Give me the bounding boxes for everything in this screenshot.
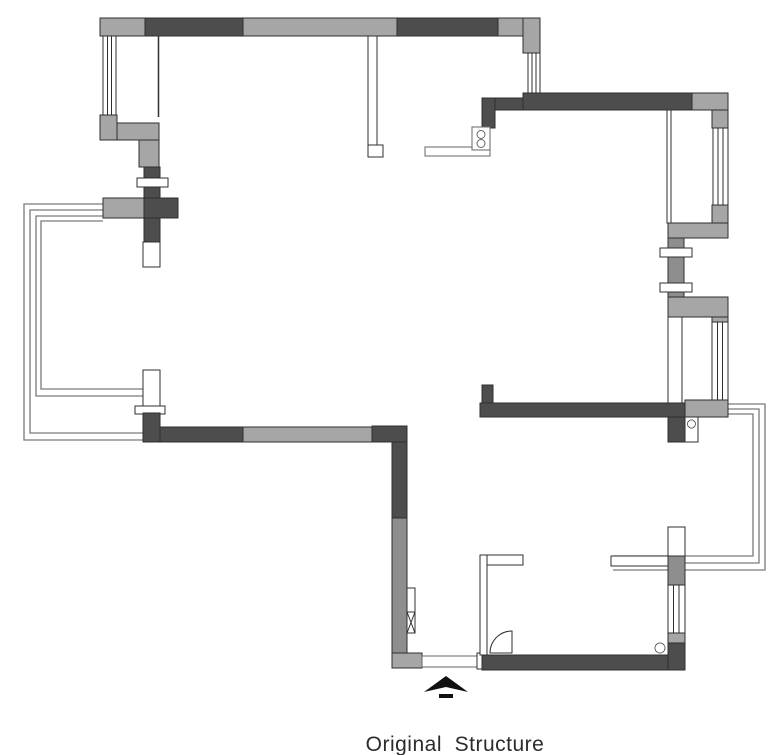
wall-segment (243, 18, 397, 36)
wall-segment (712, 205, 728, 223)
window (528, 53, 540, 93)
stud-wall (480, 555, 487, 655)
wall-segment (160, 427, 243, 442)
wall-segment (243, 427, 372, 442)
bathroom-partitions (480, 527, 685, 655)
wall-segment (712, 110, 728, 128)
drain-circle (655, 643, 665, 653)
stud-wall (611, 556, 668, 566)
stove-burner (477, 131, 485, 139)
wall-sleeve-tick (660, 283, 692, 292)
shaft-box (407, 588, 415, 633)
wall-segment (668, 556, 685, 585)
floor-plan-svg (0, 0, 775, 755)
stud-wall (668, 315, 682, 403)
wall-segment (668, 633, 685, 643)
wall-segment (100, 115, 117, 140)
wall-corner (372, 426, 407, 442)
left-balcony-railing (24, 204, 143, 440)
wall-segment (397, 18, 498, 36)
west-balcony-opening (135, 370, 165, 414)
wall-segment (392, 518, 407, 653)
wall-segment (668, 527, 685, 556)
window (712, 322, 728, 400)
wall-segment (498, 18, 523, 36)
stud-wall-foot (368, 145, 383, 157)
wall-segment (668, 417, 685, 442)
wall-corner (668, 643, 685, 670)
west-wall-cross (103, 167, 178, 267)
stud-wall (368, 36, 377, 145)
north-interior-partition (368, 36, 383, 157)
window (713, 128, 728, 205)
wall-segment (143, 413, 160, 442)
wall-segment (100, 18, 145, 36)
wall-stub (482, 385, 493, 403)
wall-segment (139, 140, 159, 167)
entry-area (422, 653, 482, 698)
wall-sleeve-tick (137, 178, 168, 187)
railing-line (41, 221, 143, 389)
wall-segment (392, 442, 407, 518)
railing-line (30, 210, 143, 433)
kitchen-counter (425, 127, 490, 156)
wall-segment (668, 223, 728, 238)
wall-segment (144, 218, 160, 242)
top-exterior-wall (100, 18, 540, 53)
wall-segment (145, 18, 243, 36)
pipe-shaft (407, 588, 415, 633)
wall-segment (668, 297, 728, 317)
wall-segment (685, 400, 728, 417)
entry-direction-arrow (424, 676, 468, 692)
entry-arrow-bar (439, 694, 453, 698)
entry-threshold (422, 656, 477, 667)
living-room-south-wall (143, 413, 422, 668)
railing-line (36, 216, 143, 396)
wall-segment (144, 198, 178, 218)
cased-opening (143, 242, 160, 267)
wall-corner (392, 653, 422, 668)
east-wing-walls (482, 93, 728, 400)
wall-sleeve-tick (660, 248, 692, 257)
fixture-circle (688, 420, 696, 428)
window (668, 585, 685, 633)
north-corner-window (528, 53, 540, 93)
partition-double-line (667, 110, 671, 223)
wall-segment (523, 93, 693, 110)
railing-line (24, 204, 143, 440)
wall-segment (117, 123, 159, 140)
bedroom-south-wall (480, 315, 728, 442)
wall-segment (480, 403, 685, 417)
floor-plan-canvas: Original Structure (0, 0, 775, 755)
plan-title: Original Structure (300, 733, 610, 755)
wall-corner (692, 93, 728, 110)
wall-segment (103, 198, 145, 218)
wall-corner (523, 18, 540, 53)
northwest-window-bay (100, 36, 159, 167)
stove-burner (477, 140, 485, 148)
kitchen-stub (482, 98, 495, 128)
door-swing (490, 631, 512, 653)
wall-segment (482, 655, 685, 670)
window (103, 36, 116, 117)
